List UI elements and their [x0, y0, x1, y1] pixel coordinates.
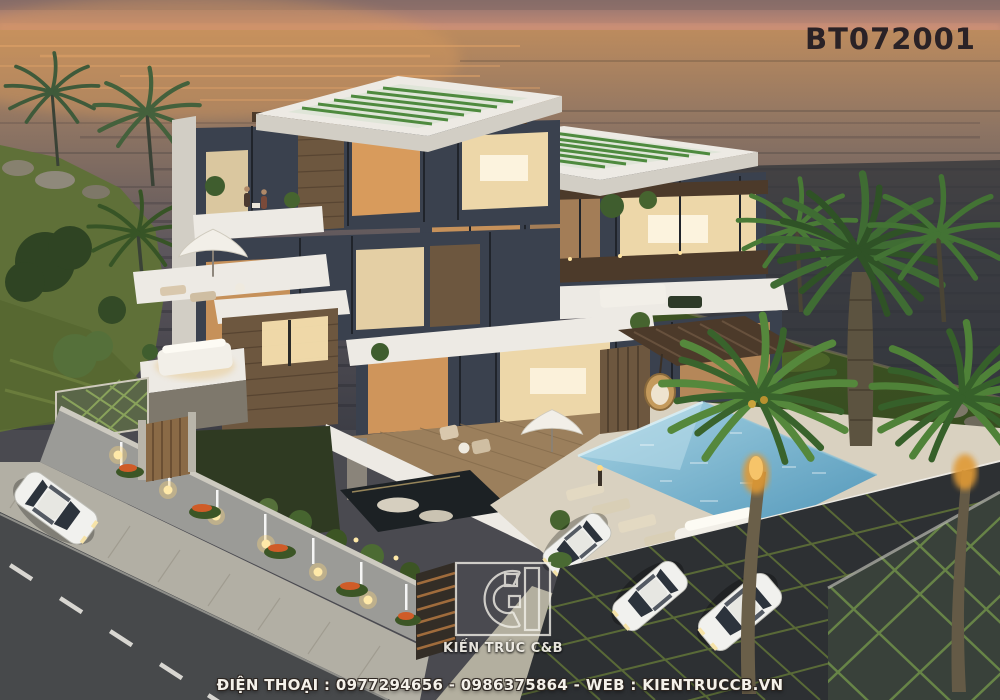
- project-code-label: BT072001: [805, 22, 976, 56]
- lit-window: [262, 316, 328, 366]
- palm-uplight-glow: [953, 454, 977, 490]
- side-table: [459, 443, 470, 454]
- shore-rock: [2, 160, 34, 176]
- cb-monogram-icon: [453, 560, 553, 638]
- contact-info-bar: ĐIỆN THOẠI : 0977294656 - 0986375864 - W…: [0, 676, 1000, 694]
- balcony-plant: [284, 192, 300, 208]
- plant: [371, 343, 389, 361]
- torch-light: [597, 465, 603, 471]
- shore-rock: [35, 171, 75, 189]
- stepping-stone: [377, 498, 419, 513]
- shore-rock: [82, 185, 110, 199]
- villa-render-image: BT072001 KIẾN TRÚC C&B ĐIỆN THOẠI : 0977…: [0, 0, 1000, 700]
- stepping-stone: [419, 510, 453, 522]
- brand-name: KIẾN TRÚC C&B: [440, 641, 566, 656]
- bollard-light: [394, 556, 399, 561]
- watermark-logo: KIẾN TRÚC C&B: [440, 560, 566, 656]
- bush: [98, 296, 126, 324]
- balcony-plant: [205, 176, 225, 196]
- bollard-light: [354, 538, 359, 543]
